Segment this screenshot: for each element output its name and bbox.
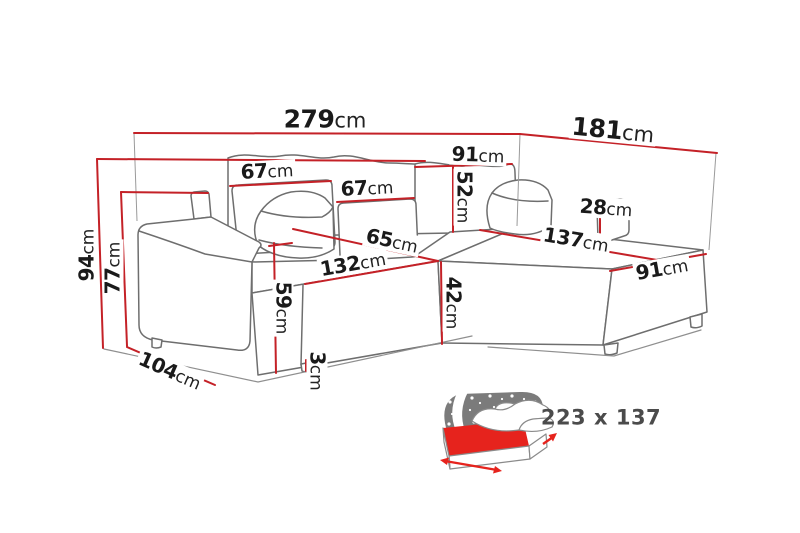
dim-back-cushion-1-width: 67cm xyxy=(238,159,296,183)
dim-back-section-width: 91cm xyxy=(449,144,506,167)
dim-leg-height: 3cm xyxy=(307,349,328,392)
dim-total-height: 94cm xyxy=(77,227,98,284)
dim-base-height: 42cm xyxy=(443,275,464,332)
dim-side-depth: 104cm xyxy=(134,347,207,394)
dim-armrest-height: 77cm xyxy=(103,240,124,297)
sofa-dimension-diagram: 279cm 181cm 91cm 67cm 67cm 52cm 28cm 137… xyxy=(0,0,800,533)
dim-back-cushion-2-width: 67cm xyxy=(338,176,396,200)
bed-size-label: 223 x 137 xyxy=(539,408,663,429)
dim-backrest-height: 52cm xyxy=(454,169,475,226)
dim-seat-height: 59cm xyxy=(273,280,294,337)
dimension-labels: 279cm 181cm 91cm 67cm 67cm 52cm 28cm 137… xyxy=(0,0,800,533)
dim-chaise-length: 137cm xyxy=(540,224,613,256)
dim-chaise-width: 91cm xyxy=(632,254,692,285)
dim-seat-width: 132cm xyxy=(317,248,390,281)
dim-total-length: 279cm xyxy=(282,107,369,132)
dim-return-length: 181cm xyxy=(569,113,658,146)
dim-right-armrest-height: 28cm xyxy=(577,196,635,221)
